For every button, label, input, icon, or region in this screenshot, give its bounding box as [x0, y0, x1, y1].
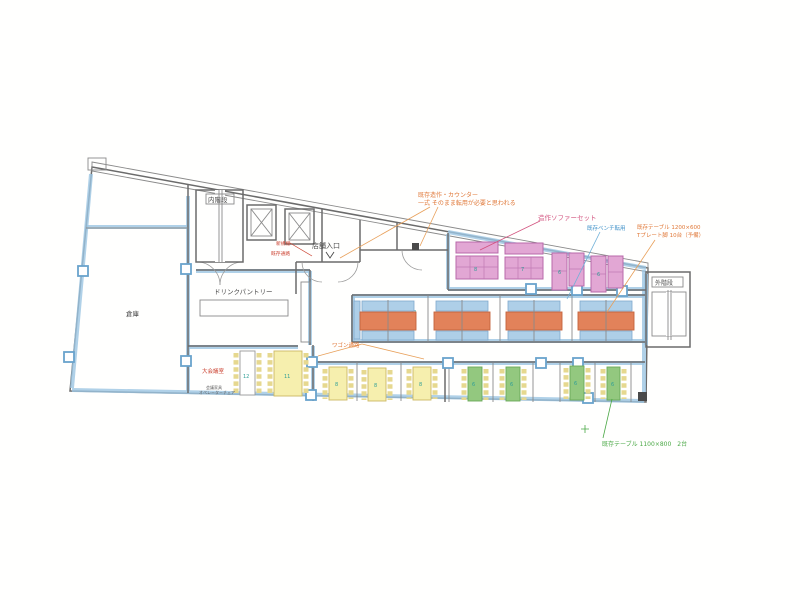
- meeting-note-2: オペレーターチェア: [199, 389, 235, 395]
- desk-count: 12: [243, 374, 249, 380]
- entrance-label: 店舗入口: [312, 241, 340, 250]
- desk-table-5: 8: [409, 367, 435, 400]
- table-note-line1: 既存テーブル 1200×600: [637, 223, 701, 231]
- sofa-count: 7: [521, 267, 524, 273]
- sofa-count: 6: [558, 270, 561, 276]
- sofa-set-2: 7: [505, 243, 543, 279]
- bench-table-set-2: [434, 300, 490, 341]
- bench-table-set-1: [360, 300, 416, 341]
- corridor-note: 既存通路: [271, 250, 290, 257]
- svg-text:8: 8: [374, 383, 377, 389]
- floor-plan: 内階段 外階段 倉庫 店舗入口 ドリンクパントリー: [0, 0, 800, 600]
- shelf-note: 新規棚: [276, 240, 291, 247]
- green-note: 既存テーブル 1100×800 2台: [602, 440, 687, 448]
- table-note-line2: Tプレート脚 10台（予備）: [636, 231, 704, 239]
- elevator-1: [247, 205, 276, 240]
- aisle-note: ワゴン通路: [332, 341, 360, 349]
- pantry-label: ドリンクパントリー: [214, 288, 273, 296]
- outer-stair-label: 外階段: [655, 279, 673, 287]
- svg-text:8: 8: [335, 382, 338, 388]
- sofa-count: 6: [597, 272, 600, 278]
- sofa-set-3: 6: [552, 253, 584, 290]
- long-table: [240, 351, 255, 395]
- bench-table-set-3: [506, 300, 562, 341]
- booth-table-4: 6: [603, 367, 624, 400]
- elevator-2: [285, 209, 314, 244]
- pantry: ドリンクパントリー: [200, 282, 310, 342]
- storage-room: 倉庫: [126, 309, 140, 318]
- meeting-room-label: 大会議室: [202, 367, 225, 375]
- sofa-note: 造作ソファーセット: [538, 213, 597, 222]
- bench-table-set-4: [578, 300, 634, 341]
- inner-staircase: 内階段: [196, 190, 243, 262]
- desk-table-3: 8: [325, 367, 351, 400]
- desk-table-4: 8: [364, 368, 390, 401]
- pantry-counter: [200, 300, 288, 316]
- elevator-x-icon: [289, 213, 310, 240]
- desk-zone: 8 8 8: [325, 367, 435, 401]
- svg-text:6: 6: [510, 382, 513, 388]
- desk-count: 11: [284, 374, 290, 380]
- sofa-count: 8: [474, 267, 477, 273]
- svg-text:8: 8: [419, 382, 422, 388]
- meeting-room: 12 11 大会議室 会議家具 オペレーターチェア: [199, 351, 306, 396]
- storage-label: 倉庫: [126, 309, 140, 318]
- elevator-x-icon: [251, 209, 272, 236]
- elevators: [247, 205, 314, 244]
- sofa-set-1: 8: [456, 242, 498, 279]
- entrance-arrow-icon: [326, 252, 334, 258]
- side-bench: [354, 301, 360, 339]
- counter-note-line2: 一式 そのまま転用が必要と思われる: [418, 199, 516, 207]
- booth-zone: 6 6 6 6: [464, 366, 624, 401]
- svg-text:6: 6: [611, 382, 614, 388]
- outer-staircase: 外階段: [646, 272, 690, 347]
- bench-note: 既存ベンチ転用: [587, 224, 626, 232]
- svg-text:6: 6: [574, 381, 577, 387]
- booth-table-2: 6: [502, 367, 524, 401]
- floor-plan-page: 内階段 外階段 倉庫 店舗入口 ドリンクパントリー: [0, 0, 800, 600]
- bench-table-zone: 74: [354, 300, 634, 341]
- svg-text:6: 6: [472, 382, 475, 388]
- counter-note-line1: 既存造作・カウンター: [418, 191, 478, 199]
- inner-stair-label: 内階段: [208, 195, 228, 204]
- entrance: 店舗入口: [312, 241, 340, 258]
- leader-tick: [581, 425, 589, 433]
